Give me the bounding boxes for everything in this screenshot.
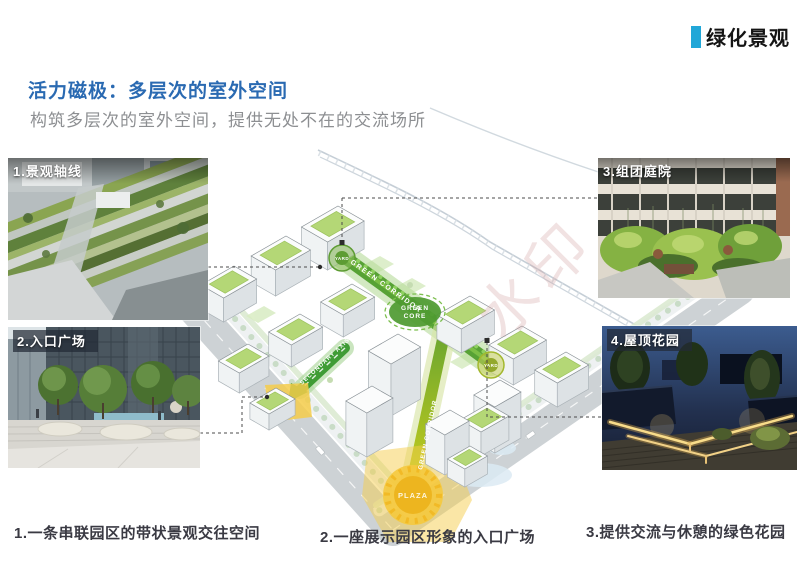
photo-roof-garden: 4.屋顶花园 [602,326,797,470]
photo3-label: 3.组团庭院 [603,161,672,180]
caption-green-garden: 3.提供交流与休憩的绿色花园 [586,521,786,542]
photo1-label: 1.景观轴线 [13,161,82,180]
yard1-label: YARD [335,256,350,261]
photo-entrance-plaza: 2.入口广场 [8,327,200,468]
page-subtitle: 构筑多层次的室外空间，提供无处不在的交流场所 [30,106,426,131]
green-core-label2: CORE [404,313,427,320]
photo-cluster-courtyard: 3.组团庭院 [598,158,790,298]
photo-landscape-axis: 1.景观轴线 [8,158,208,320]
caption-landscape-axis: 1.一条串联园区的带状景观交往空间 [14,522,260,543]
slide: 绿化景观 活力磁极：多层次的室外空间 构筑多层次的室外空间，提供无处不在的交流场… [0,0,800,565]
yard2-label: YARD [484,363,499,368]
page-title: 活力磁极：多层次的室外空间 [28,76,288,103]
site-plan-diagram: YARD YARD GREEN CORE PLAZA GREEN CORRIDO… [150,80,800,565]
plaza-label: PLAZA [398,491,428,500]
accent-bar [691,26,701,48]
photo4-label: 4.屋顶花园 [607,329,692,351]
section-tag: 绿化景观 [691,22,790,51]
landscape-axis-image [8,158,208,320]
photo2-label: 2.入口广场 [13,330,98,352]
caption-entrance-plaza: 2.一座展示园区形象的入口广场 [320,526,535,547]
section-tag-label: 绿化景观 [706,22,790,51]
